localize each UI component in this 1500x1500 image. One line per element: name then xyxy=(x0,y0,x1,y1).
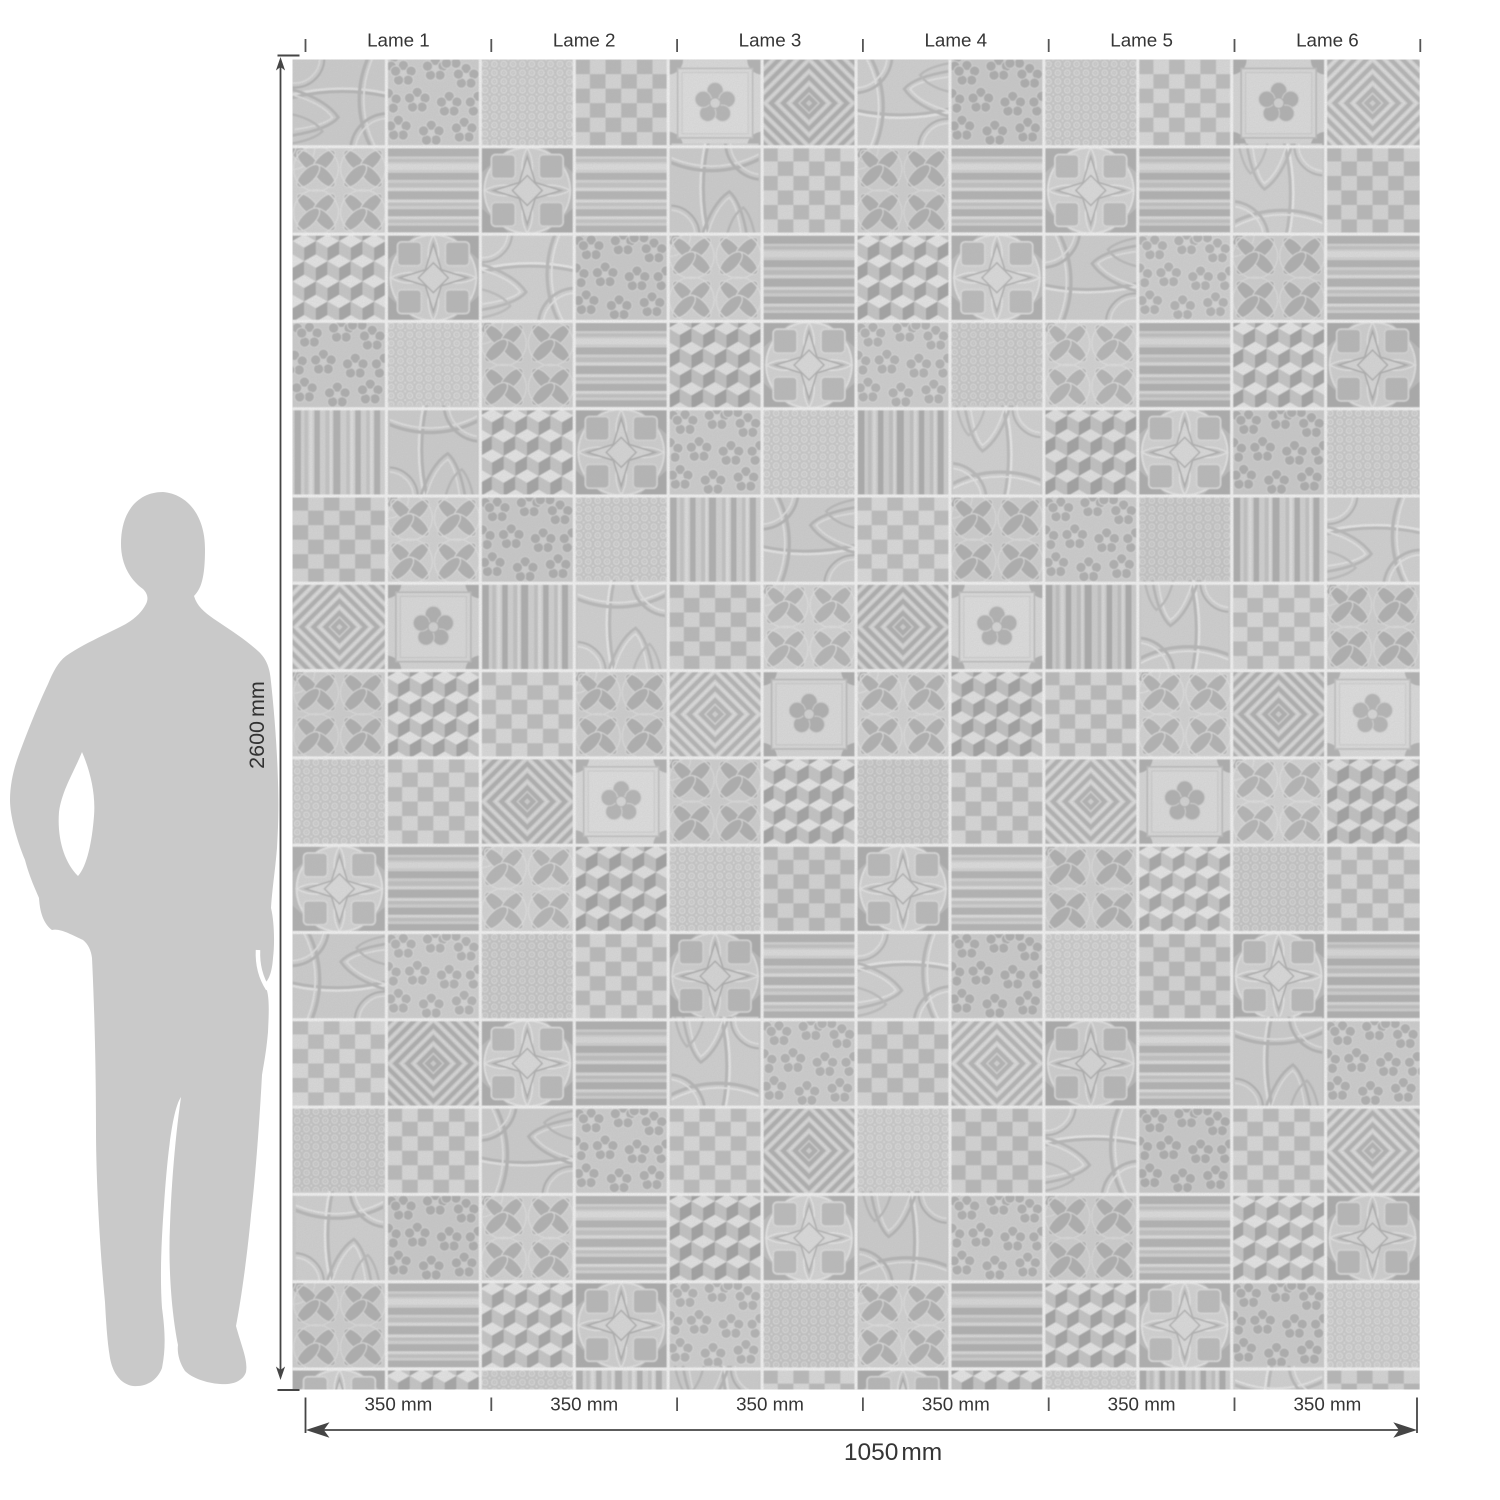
svg-text:350 mm: 350 mm xyxy=(736,1394,804,1415)
svg-text:350 mm: 350 mm xyxy=(550,1394,618,1415)
svg-text:Lame 2: Lame 2 xyxy=(553,30,616,51)
svg-text:Lame 1: Lame 1 xyxy=(367,30,430,51)
svg-text:Lame 6: Lame 6 xyxy=(1296,30,1359,51)
svg-text:350 mm: 350 mm xyxy=(364,1394,432,1415)
svg-text:2600mm: 2600mm xyxy=(245,681,269,769)
svg-text:350 mm: 350 mm xyxy=(1293,1394,1361,1415)
svg-text:350 mm: 350 mm xyxy=(922,1394,990,1415)
svg-text:Lame 3: Lame 3 xyxy=(739,30,802,51)
svg-text:Lame 5: Lame 5 xyxy=(1110,30,1173,51)
svg-text:Lame 4: Lame 4 xyxy=(924,30,987,51)
svg-text:350 mm: 350 mm xyxy=(1108,1394,1176,1415)
svg-text:1050mm: 1050mm xyxy=(844,1439,942,1466)
